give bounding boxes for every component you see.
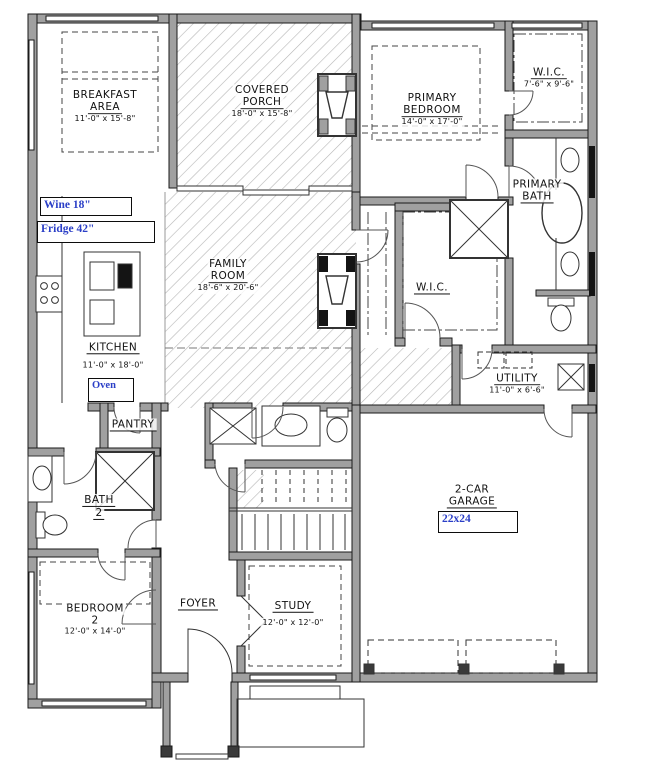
porch-fireplace	[318, 74, 356, 136]
bath2-shower	[96, 452, 154, 510]
annotation-fridge[interactable]: Fridge 42"	[37, 221, 155, 243]
primary-shower	[450, 200, 508, 258]
family-room-fireplace	[318, 254, 356, 328]
utility-sink	[558, 364, 584, 390]
linen-closet	[210, 408, 256, 444]
annotation-oven[interactable]: Oven	[88, 378, 134, 402]
kitchen-island	[84, 252, 140, 336]
annotation-garage-size[interactable]: 22x24	[438, 511, 518, 533]
annotation-wine[interactable]: Wine 18"	[40, 197, 132, 216]
range	[36, 276, 62, 312]
floor-plan: BREAKFAST AREA 11'-0" x 15'-8" COVERED P…	[0, 0, 650, 782]
